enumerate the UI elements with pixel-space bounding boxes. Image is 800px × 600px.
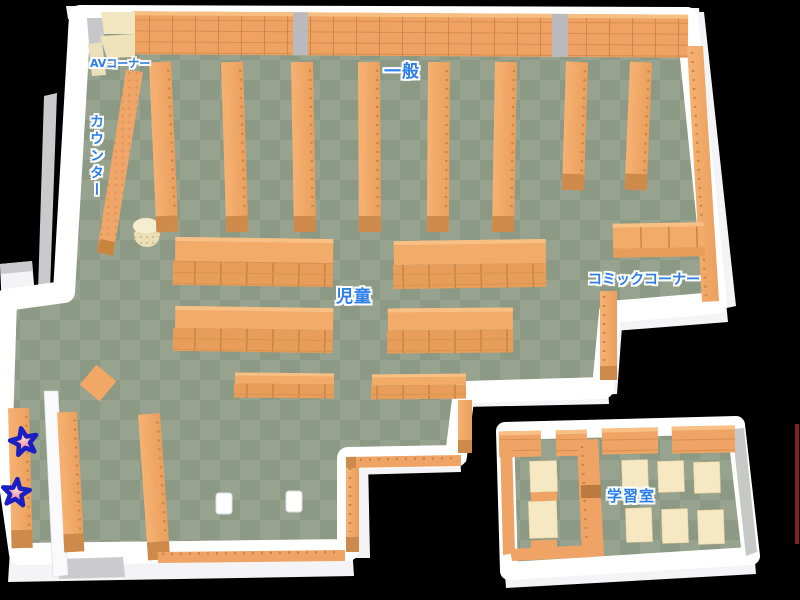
study-table: [657, 461, 684, 493]
study-table: [697, 510, 724, 545]
area-label-study-room: 学習室: [607, 485, 655, 506]
top-wall-shelves: [133, 11, 688, 57]
spinner-rack: [133, 218, 160, 247]
area-label-av-corner: AVコーナー: [90, 55, 150, 71]
study-table: [625, 508, 652, 543]
study-table: [693, 462, 720, 494]
area-label-counter: カウンター: [86, 114, 106, 199]
study-room: [499, 425, 757, 588]
study-table: [661, 509, 688, 544]
area-label-comic-corner: コミックコーナー: [588, 269, 700, 289]
floor-map-canvas: [0, 0, 800, 600]
area-label-children: 児童: [336, 282, 372, 307]
study-table: [528, 501, 557, 539]
study-table: [529, 461, 557, 493]
stool: [216, 493, 232, 514]
area-label-general: 一般: [384, 57, 420, 82]
edge-marker: [795, 424, 799, 544]
library-map: AVコーナー 一般 カウンター 児童 コミックコーナー 学習室: [0, 0, 800, 600]
stool: [286, 491, 302, 512]
